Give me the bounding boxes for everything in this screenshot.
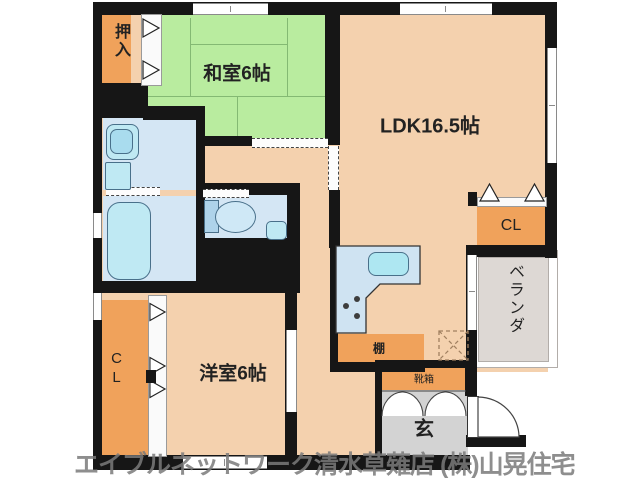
washing-machine-pan [105,162,131,190]
window-tick [469,291,475,292]
window-tick [445,6,446,12]
washitsu-room-lower [205,94,325,140]
washbasin-bowl [110,129,133,154]
window-top-ldk [400,3,492,15]
shelf-label: 棚 [373,340,385,357]
refrigerator-space [438,330,469,361]
folding-door-triangle-icon [479,183,500,202]
closet-left-door-knob [146,370,156,383]
wall-shoebox-east [465,368,477,396]
floor-plan: 押入 和室6帖 LDK16.5帖 CL ベランダ CL 洋室6帖 棚 靴箱 玄 … [0,0,640,480]
oshiire-label: 押入 [108,23,132,59]
fusuma-triangle-icon [142,18,160,38]
window-left-bathroom [93,293,102,320]
sliding-door-toilet [203,189,249,198]
folding-door-triangle-icon [524,183,545,202]
veranda-label: ベランダ [502,263,526,335]
sliding-door-washitsu-hall [252,138,328,148]
wall-closet-right-jamb-left [468,192,477,206]
window-top-washitsu [193,3,268,15]
veranda-door [467,255,477,330]
kitchen-sink [368,252,409,276]
yoshitsu-door-opening [286,330,297,412]
toilet-bowl [215,201,256,233]
tatami-line [190,18,191,96]
tatami-line [143,96,325,97]
shoe-box-label: 靴箱 [414,371,434,386]
wall-toilet-east [287,190,300,240]
sliding-door-hall-ldk [328,146,339,190]
fusuma-triangle-icon [142,60,160,80]
wall-closet-right-south [468,245,552,257]
wall-washitsu-ldk [325,14,340,145]
entry-door-swing-arc [477,397,520,438]
tatami-line [190,44,287,45]
wall-genkan-north [375,360,477,368]
window-left-washroom [93,213,102,238]
tatami-line [237,96,238,138]
agency-watermark: エイブルネットワーク清水草薙店 (株)山晃住宅 [74,445,594,480]
closet-right-label: CL [501,217,521,235]
stove-burner [354,313,360,319]
stove-burner [343,303,349,309]
toilet-hand-sink [266,221,287,240]
genkan-label: 玄 [414,413,434,442]
window-right-ldk [547,48,557,163]
yoshitsu-label: 洋室6帖 [199,359,267,386]
bathtub [107,202,151,280]
window-tick [549,105,555,106]
tatami-line [287,18,288,96]
ldk-label: LDK16.5帖 [380,110,480,139]
washitsu-label: 和室6帖 [203,59,271,86]
window-tick [230,6,231,12]
stove-burner [354,296,360,302]
closet-left-label: CL [108,350,125,388]
wall-oshiire-south [93,83,148,118]
wall-hall-segment [205,136,252,146]
fusuma-triangle-icon [149,302,166,322]
wall-yoshitsu-north [93,281,297,293]
